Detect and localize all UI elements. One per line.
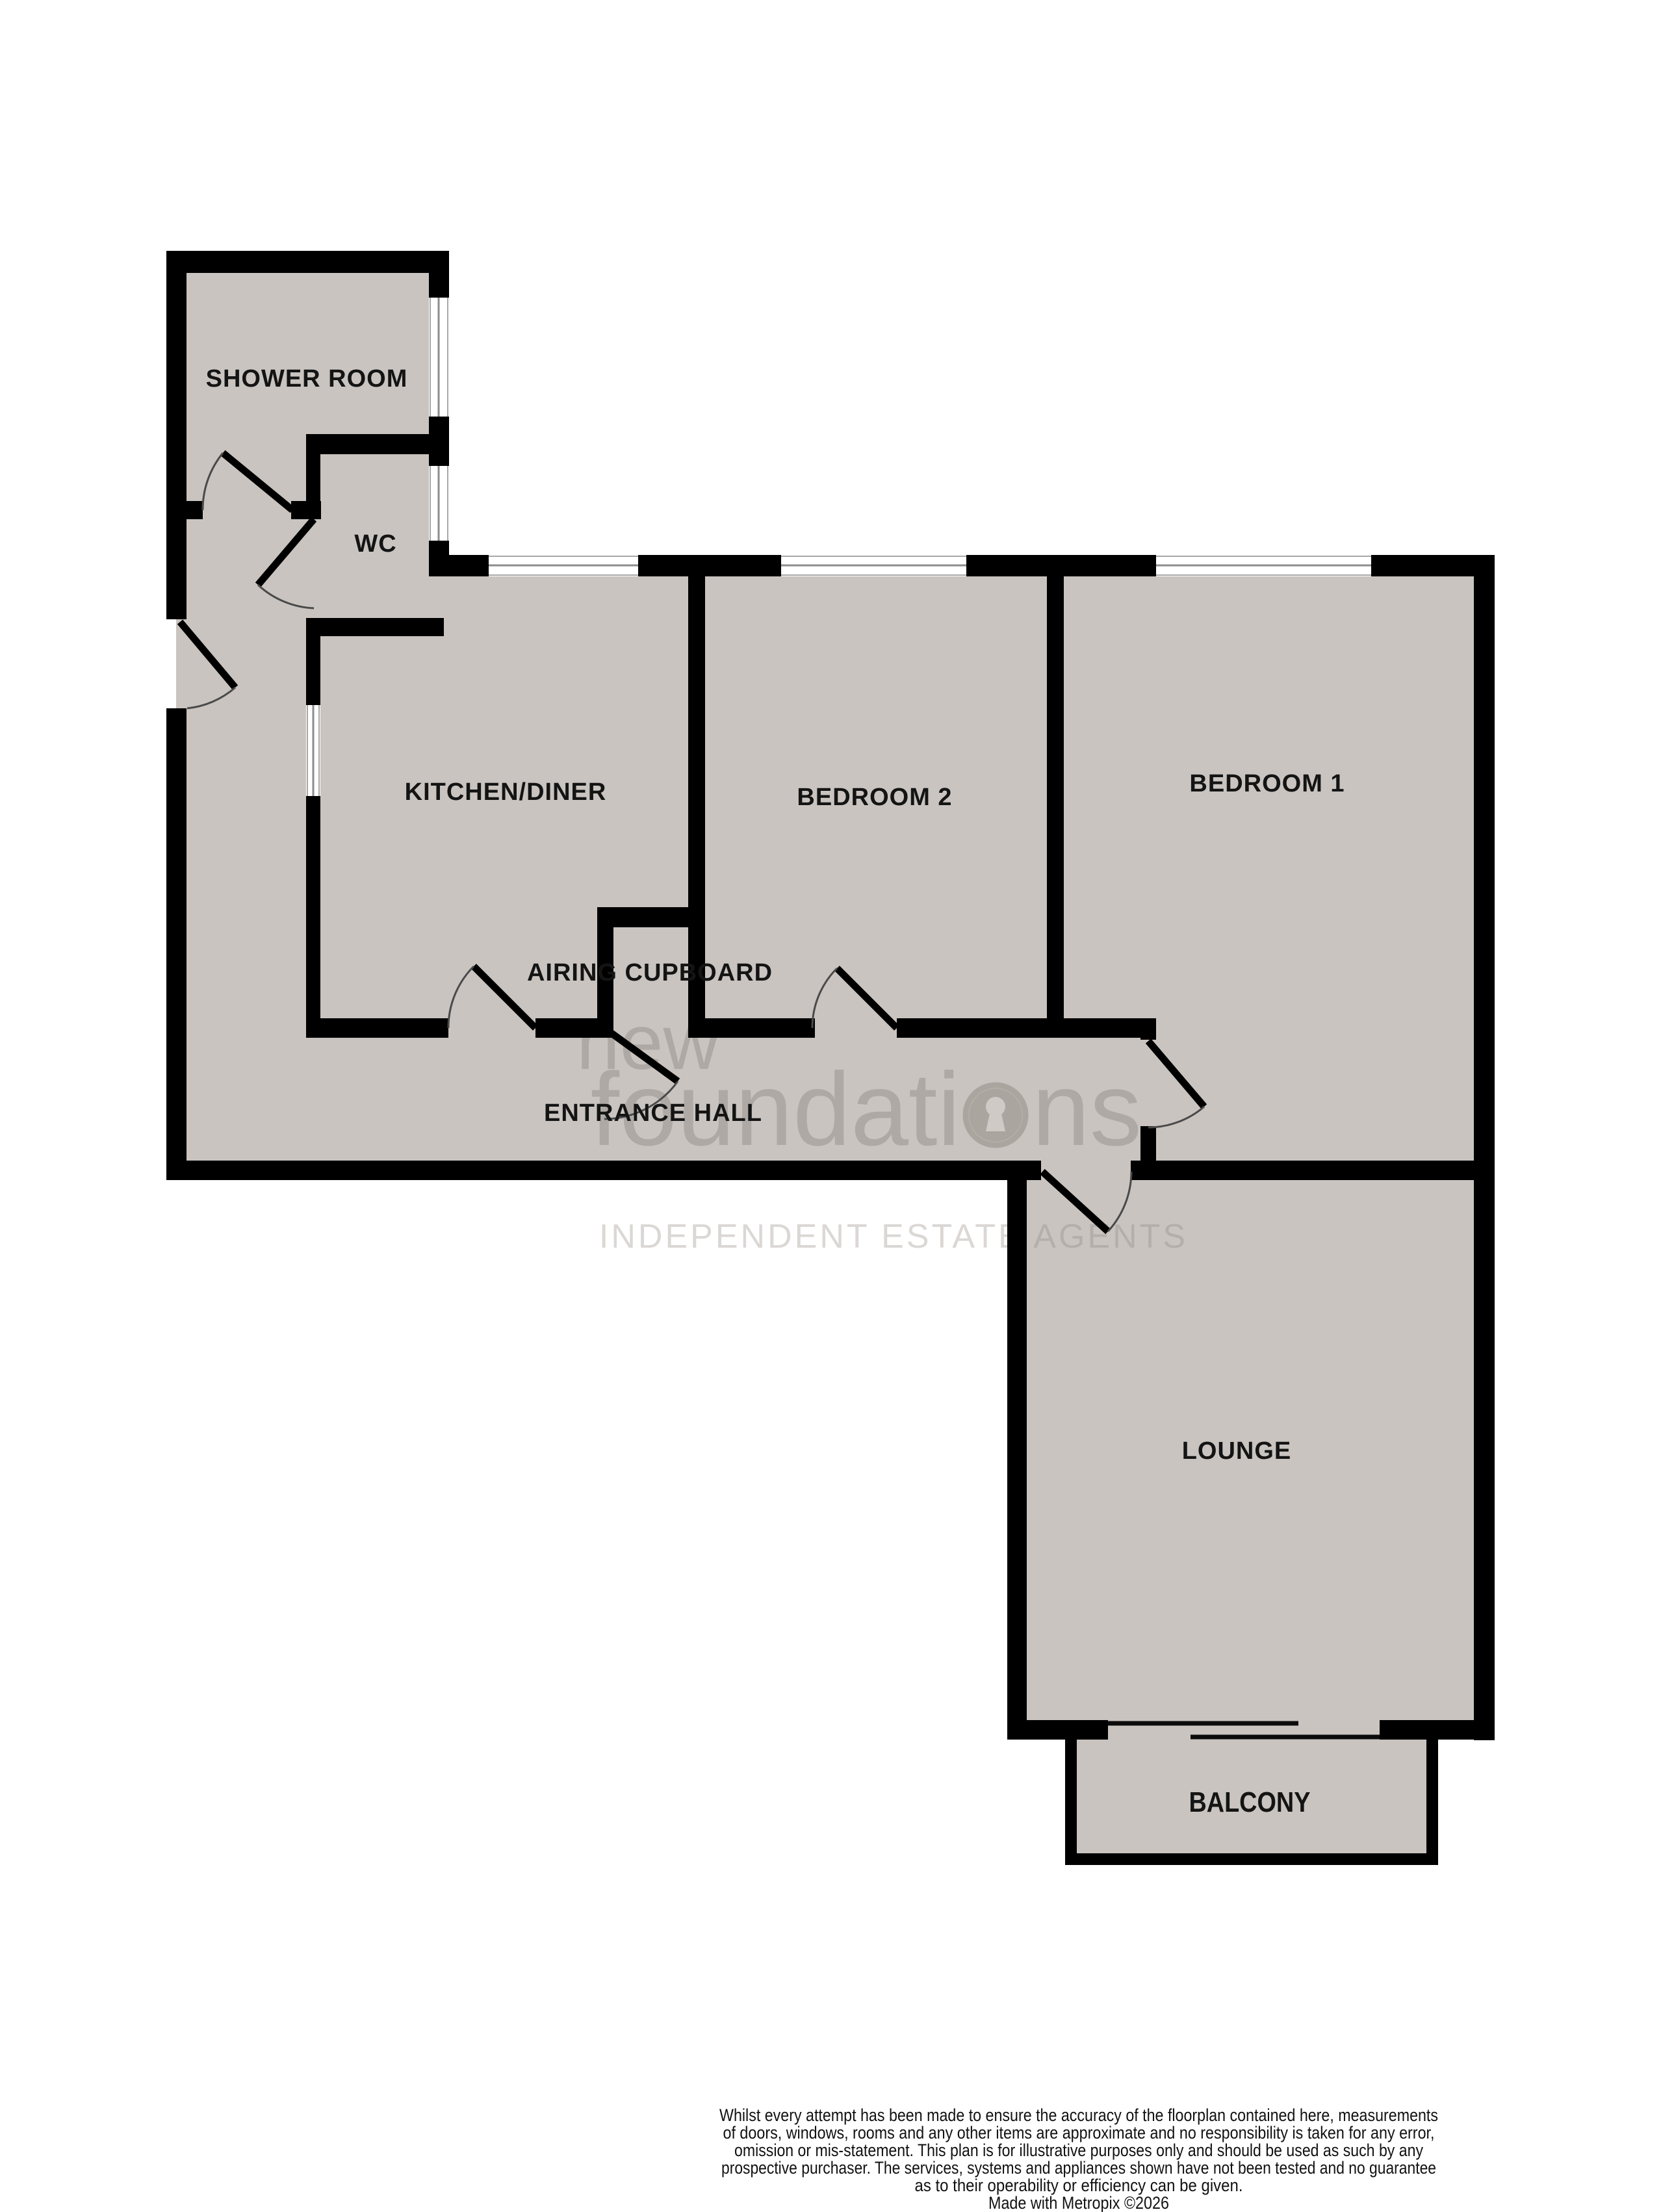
wall-left-outer-lower	[166, 708, 187, 1180]
wall-kitchen-left-lower	[306, 796, 320, 1038]
room-label-entrance-hall: ENTRANCE HALL	[544, 1100, 762, 1127]
room-label-balcony: BALCONY	[1189, 1786, 1310, 1818]
wall-top-seg2	[638, 555, 781, 576]
wall-wc-top	[306, 434, 449, 454]
wall-shower-right-seg3	[429, 541, 449, 576]
wall-bedroom2-bottom-seg1	[688, 1018, 815, 1038]
disclaimer-line-3: omission or mis-statement. This plan is …	[734, 2141, 1423, 2160]
wall-lounge-top	[1131, 1161, 1495, 1180]
window-bedroom2	[781, 555, 966, 576]
window-kitchen-top	[489, 555, 638, 576]
window-wc	[429, 466, 449, 541]
window-kitchen-left	[306, 705, 320, 796]
wall-bedroom2-bedroom1-divider	[1047, 564, 1064, 1025]
floorplan-image: new foundati ns INDEPENDENT ESTATE AGENT…	[0, 0, 1661, 2212]
window-shower	[429, 298, 449, 417]
keyhole-icon	[966, 1085, 1025, 1145]
wall-bedroom2-bottom-seg2	[897, 1018, 1153, 1038]
disclaimer-line-1: Whilst every attempt has been made to en…	[719, 2105, 1438, 2125]
wall-wc-left	[306, 434, 320, 519]
window-bedroom1	[1156, 555, 1371, 576]
disclaimer-line-5: as to their operability or efficiency ca…	[915, 2176, 1243, 2195]
wall-bedroom1-door-post-top	[1140, 1018, 1156, 1040]
room-label-kitchen-diner: KITCHEN/DINER	[405, 778, 607, 806]
floorplan-svg: new foundati ns INDEPENDENT ESTATE AGENT…	[0, 0, 1661, 2212]
room-label-bedroom2: BEDROOM 2	[797, 784, 952, 811]
room-label-wc: WC	[354, 530, 396, 558]
room-label-bedroom1: BEDROOM 1	[1189, 770, 1345, 797]
watermark-line2-right: ns	[1032, 1051, 1142, 1167]
footer: Whilst every attempt has been made to en…	[719, 2105, 1438, 2212]
disclaimer-line-2: of doors, windows, rooms and any other i…	[723, 2123, 1435, 2142]
wall-kitchen-left-upper	[306, 618, 320, 705]
room-label-lounge: LOUNGE	[1182, 1437, 1292, 1465]
wall-kitchen-bottom	[306, 1018, 448, 1038]
wall-hall-bottom	[166, 1161, 1041, 1180]
wall-right-outer	[1474, 555, 1495, 1740]
wall-shower-top	[166, 251, 449, 273]
room-label-shower-room: SHOWER ROOM	[206, 365, 408, 392]
metropix-credit: Made with Metropix ©2026	[988, 2193, 1169, 2212]
wall-bedroom1-door-post-bottom	[1140, 1126, 1156, 1180]
wall-balcony-right	[1426, 1730, 1438, 1865]
disclaimer-line-4: prospective purchaser. The services, sys…	[721, 2158, 1436, 2178]
wall-shower-right-seg2	[429, 417, 449, 466]
wall-wc-bottom	[306, 618, 444, 636]
wall-balcony-bottom	[1065, 1853, 1438, 1865]
wall-balcony-left	[1065, 1730, 1077, 1865]
room-label-airing-cupboard: AIRING CUPBOARD	[527, 959, 773, 986]
wall-shower-right-seg1	[429, 251, 449, 298]
wall-lounge-left	[1007, 1161, 1027, 1740]
wall-left-outer-upper	[166, 251, 187, 619]
